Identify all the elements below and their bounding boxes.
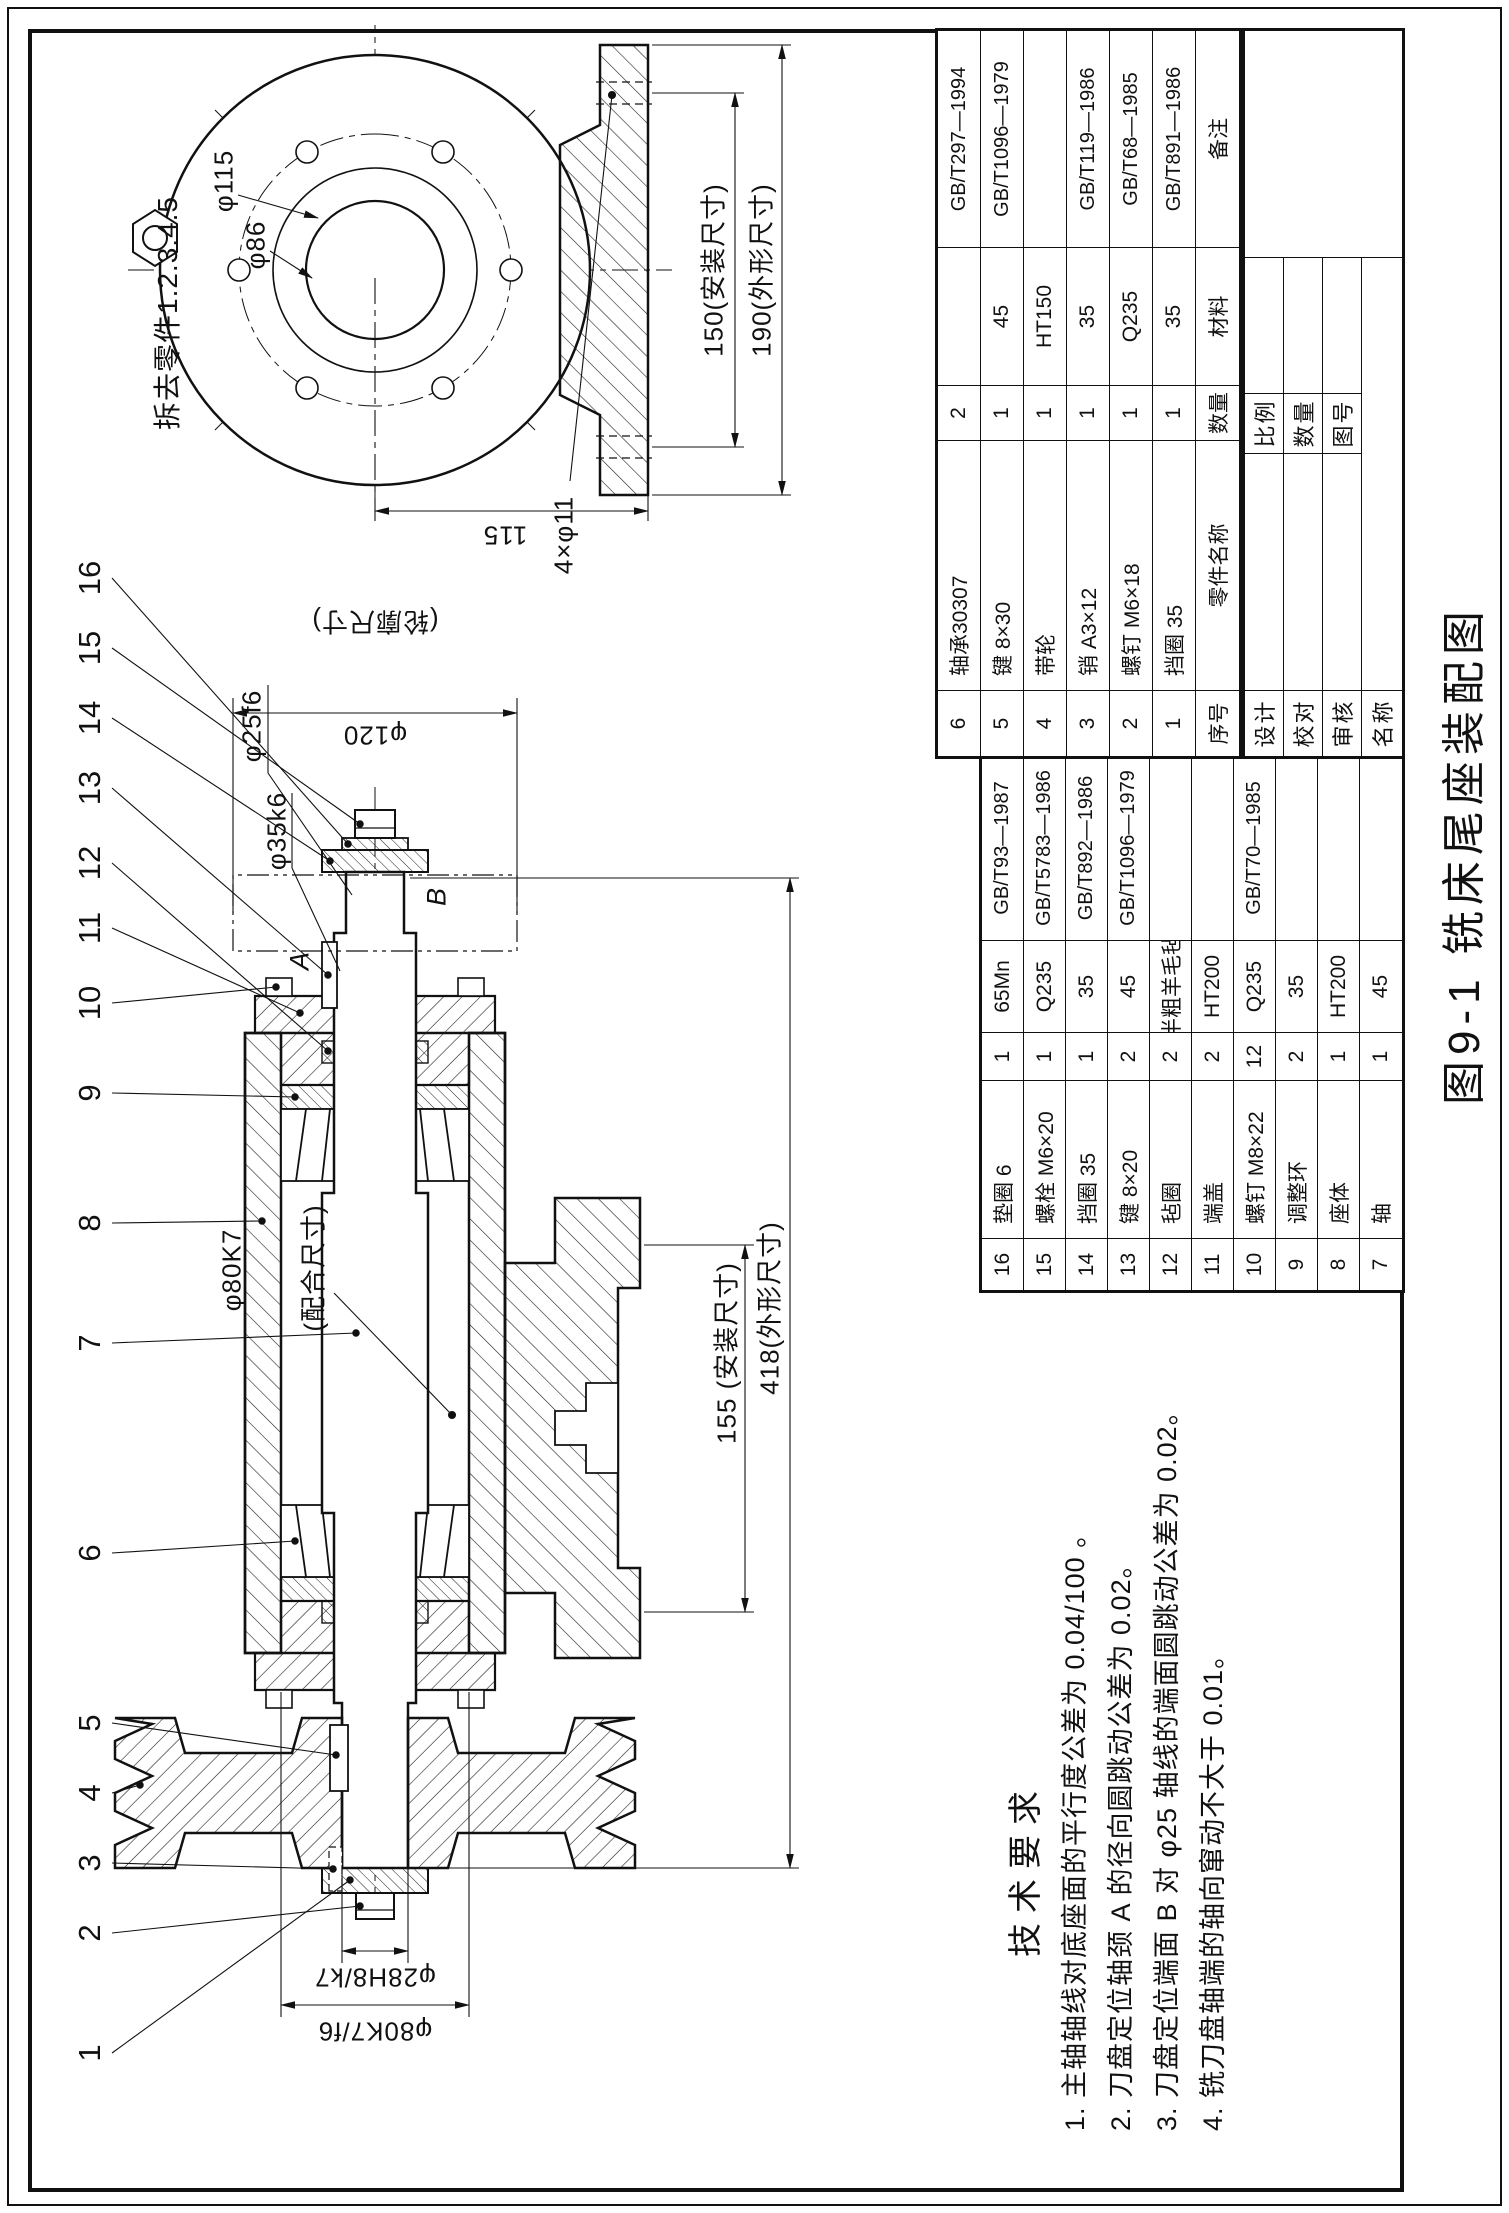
title-block-dwgno-value <box>1323 257 1362 393</box>
tech-requirements-title: 技术要求 <box>998 1781 1047 1957</box>
bom-cell-rem: GB/T1096—1979 <box>1108 756 1150 940</box>
dim-phi35k6: φ35k6 <box>262 792 293 870</box>
bom-cell-rem: GB/T892—1986 <box>1066 756 1108 940</box>
bom-cell-no: 12 <box>1150 1238 1192 1290</box>
bom-cell-qty: 1 <box>1153 385 1196 440</box>
dim-phi115: φ115 <box>209 150 240 212</box>
balloon-13: 13 <box>72 771 108 805</box>
bom-cell-rem <box>1318 756 1360 940</box>
bom-cell-qty: 1 <box>1318 1032 1360 1080</box>
bom-cell-mat: 35 <box>1067 247 1110 385</box>
bom-cell-qty: 1 <box>1067 385 1110 440</box>
bom-cell-name: 座体 <box>1318 1080 1360 1238</box>
dim-phi120: φ120 <box>343 720 407 751</box>
balloon-9: 9 <box>72 1084 108 1101</box>
title-block-org-cell <box>1245 31 1402 257</box>
bom-cell-rem: GB/T297—1994 <box>938 31 981 247</box>
balloon-16: 16 <box>72 561 108 595</box>
bom-cell-no: 10 <box>1234 1238 1276 1290</box>
bom-cell-qty: 1 <box>1024 385 1067 440</box>
bom-cell-mat: HT200 <box>1318 940 1360 1032</box>
drawing-sheet: 1 2 3 4 5 6 7 8 9 10 11 12 13 14 15 16 φ… <box>0 0 1509 2213</box>
datum-a: A <box>285 952 316 970</box>
title-block-dwgno-label: 图号 <box>1323 393 1362 453</box>
end-view <box>128 25 791 521</box>
bom-cell-no: 2 <box>1110 690 1153 756</box>
bom-cell-no: 13 <box>1108 1238 1150 1290</box>
tech-item-3: 3. 刀盘定位端面 B 对 φ25 轴线的端面圆跳动公差为 0.02。 <box>1144 1397 1190 2131</box>
bom-cell-name: 键 8×20 <box>1108 1080 1150 1238</box>
bom-cell-mat: 65Mn <box>982 940 1024 1032</box>
bom-cell-mat: 45 <box>981 247 1024 385</box>
bom-cell-rem: GB/T68—1985 <box>1110 31 1153 247</box>
bom-cell-mat: HT150 <box>1024 247 1067 385</box>
bom-cell-no: 16 <box>982 1238 1024 1290</box>
title-block-design-value <box>1245 453 1284 690</box>
title-block-name-value <box>1362 257 1402 690</box>
bom-cell-no: 5 <box>981 690 1024 756</box>
bom-cell-mat: 半粗羊毛毡 <box>1150 940 1192 1032</box>
bom-cell-no: 3 <box>1067 690 1110 756</box>
bom-cell-name: 螺栓 M6×20 <box>1024 1080 1066 1238</box>
title-block-audit-value <box>1323 453 1362 690</box>
bom-cell-qty: 2 <box>938 385 981 440</box>
bom-cell-qty: 1 <box>1110 385 1153 440</box>
bom-header-cell: 备注 <box>1196 31 1239 247</box>
bom-cell-mat: 45 <box>1360 940 1402 1032</box>
balloon-4: 4 <box>72 1784 108 1801</box>
bom-cell-no: 15 <box>1024 1238 1066 1290</box>
bom-cell-rem: GB/T1096—1979 <box>981 31 1024 247</box>
bom-cell-qty: 1 <box>1360 1032 1402 1080</box>
dim-phi80f6: φ80K7/f6 <box>318 2016 433 2047</box>
title-block-check-label: 校对 <box>1284 690 1323 756</box>
balloon-15: 15 <box>72 631 108 665</box>
bom-cell-mat: HT200 <box>1192 940 1234 1032</box>
bom-cell-rem <box>1150 756 1192 940</box>
bom-cell-mat: 45 <box>1108 940 1150 1032</box>
title-block: 设计 校对 审核 名称 比例 数量 图号 <box>1242 28 1405 759</box>
bom-cell-qty: 1 <box>982 1032 1024 1080</box>
bom-table-lower: 6轴承303072GB/T297—19945键 8×30145GB/T1096—… <box>935 28 1242 759</box>
bom-cell-rem: GB/T93—1987 <box>982 756 1024 940</box>
dim-418: 418(外形尺寸) <box>750 1221 787 1395</box>
bom-cell-no: 14 <box>1066 1238 1108 1290</box>
datum-b: B <box>422 888 453 906</box>
balloon-12: 12 <box>72 846 108 880</box>
title-block-quantity-value <box>1284 257 1323 393</box>
bom-cell-name: 销 A3×12 <box>1067 440 1110 690</box>
bom-cell-qty: 2 <box>1108 1032 1150 1080</box>
balloon-11: 11 <box>72 912 108 944</box>
bom-cell-no: 7 <box>1360 1238 1402 1290</box>
balloon-8: 8 <box>72 1214 108 1231</box>
dim-phi86: φ86 <box>241 221 272 270</box>
dim-phi28: φ28H8/k7 <box>314 1962 436 1993</box>
title-block-quantity-label: 数量 <box>1284 393 1323 453</box>
bom-cell-no: 8 <box>1318 1238 1360 1290</box>
bom-cell-qty: 2 <box>1150 1032 1192 1080</box>
bom-cell-mat: Q235 <box>1234 940 1276 1032</box>
balloon-2: 2 <box>72 1924 108 1941</box>
balloon-6: 6 <box>72 1544 108 1561</box>
bom-cell-qty: 12 <box>1234 1032 1276 1080</box>
bom-cell-name: 调整环 <box>1276 1080 1318 1238</box>
bom-cell-mat: Q235 <box>1110 247 1153 385</box>
bom-header-cell: 序号 <box>1196 690 1239 756</box>
bom-cell-qty: 1 <box>1024 1032 1066 1080</box>
tech-item-1: 1. 主轴轴线对底座面的平行度公差为 0.04/100 。 <box>1052 1397 1098 2131</box>
bom-cell-no: 1 <box>1153 690 1196 756</box>
screenshot-page: 1 2 3 4 5 6 7 8 9 10 11 12 13 14 15 16 φ… <box>0 0 1509 2213</box>
tech-item-2: 2. 刀盘定位轴颈 A 的径向圆跳动公差为 0.02。 <box>1098 1397 1144 2131</box>
bom-cell-name: 螺钉 M6×18 <box>1110 440 1153 690</box>
title-block-scale-value <box>1245 257 1284 393</box>
bom-cell-qty: 2 <box>1192 1032 1234 1080</box>
dim-190: 190(外形尺寸) <box>742 183 779 357</box>
tech-requirements: 1. 主轴轴线对底座面的平行度公差为 0.04/100 。 2. 刀盘定位轴颈 … <box>1052 1397 1236 2131</box>
title-block-audit-label: 审核 <box>1323 690 1362 756</box>
dim-4xphi11: 4×φ11 <box>549 496 580 575</box>
bom-header-cell: 材料 <box>1196 247 1239 385</box>
bom-cell-rem <box>1360 756 1402 940</box>
bom-cell-no: 6 <box>938 690 981 756</box>
title-block-name-label: 名称 <box>1362 690 1402 756</box>
balloon-14: 14 <box>72 701 108 735</box>
balloon-5: 5 <box>72 1714 108 1731</box>
figure-caption: 图9-1 铣床尾座装配图 <box>1428 605 1492 1105</box>
balloon-1: 1 <box>72 2044 108 2061</box>
bom-cell-rem <box>1192 756 1234 940</box>
removed-parts-note: 拆去零件1.2.3.4.5 <box>146 196 186 430</box>
bom-header-cell: 数量 <box>1196 385 1239 440</box>
bom-cell-mat: 35 <box>1066 940 1108 1032</box>
bom-cell-no: 11 <box>1192 1238 1234 1290</box>
bom-cell-name: 端盖 <box>1192 1080 1234 1238</box>
title-block-design-label: 设计 <box>1245 690 1284 756</box>
bom-cell-no: 9 <box>1276 1238 1318 1290</box>
bom-cell-mat: Q235 <box>1024 940 1066 1032</box>
bom-cell-name: 带轮 <box>1024 440 1067 690</box>
bom-cell-name: 键 8×30 <box>981 440 1024 690</box>
bom-cell-qty: 1 <box>1066 1032 1108 1080</box>
bom-cell-rem: GB/T891—1986 <box>1153 31 1196 247</box>
bom-cell-rem: GB/T70—1985 <box>1234 756 1276 940</box>
bom-table-upper: 16垫圈 6165MnGB/T93—198715螺栓 M6×201Q235GB/… <box>979 753 1405 1293</box>
tech-item-4: 4. 铣刀盘轴端的轴向窜动不大于 0.01。 <box>1190 1397 1236 2131</box>
dim-phi25f6: φ25f6 <box>237 690 268 762</box>
balloon-3: 3 <box>72 1854 108 1871</box>
main-section-view <box>115 685 799 2017</box>
bom-cell-mat <box>938 247 981 385</box>
title-block-check-value <box>1284 453 1323 690</box>
dim-phi80k7: φ80K7 <box>217 1229 248 1312</box>
bom-cell-name: 螺钉 M8×22 <box>1234 1080 1276 1238</box>
dim-fit-note: (配合尺寸) <box>294 1204 331 1331</box>
bom-cell-rem <box>1024 31 1067 247</box>
bom-cell-name: 轴承30307 <box>938 440 981 690</box>
bom-cell-name: 挡圈 35 <box>1066 1080 1108 1238</box>
bom-cell-name: 挡圈 35 <box>1153 440 1196 690</box>
dim-150: 150(安装尺寸) <box>694 183 731 357</box>
bom-cell-mat: 35 <box>1276 940 1318 1032</box>
dim-115-height: 115 <box>483 520 527 551</box>
bom-cell-rem: GB/T119—1986 <box>1067 31 1110 247</box>
balloon-10: 10 <box>72 986 108 1020</box>
bom-cell-name: 毡圈 <box>1150 1080 1192 1238</box>
bom-cell-name: 垫圈 6 <box>982 1080 1024 1238</box>
bom-cell-mat: 35 <box>1153 247 1196 385</box>
bom-cell-no: 4 <box>1024 690 1067 756</box>
title-block-scale-label: 比例 <box>1245 393 1284 453</box>
balloon-7: 7 <box>72 1334 108 1351</box>
bom-cell-qty: 2 <box>1276 1032 1318 1080</box>
dim-outline-note: (轮廓尺寸) <box>311 605 438 642</box>
dim-155: 155 (安装尺寸) <box>707 1262 744 1444</box>
bom-cell-name: 轴 <box>1360 1080 1402 1238</box>
bom-cell-rem: GB/T5783—1986 <box>1024 756 1066 940</box>
bom-cell-rem <box>1276 756 1318 940</box>
bom-header-cell: 零件名称 <box>1196 440 1239 690</box>
bom-cell-qty: 1 <box>981 385 1024 440</box>
